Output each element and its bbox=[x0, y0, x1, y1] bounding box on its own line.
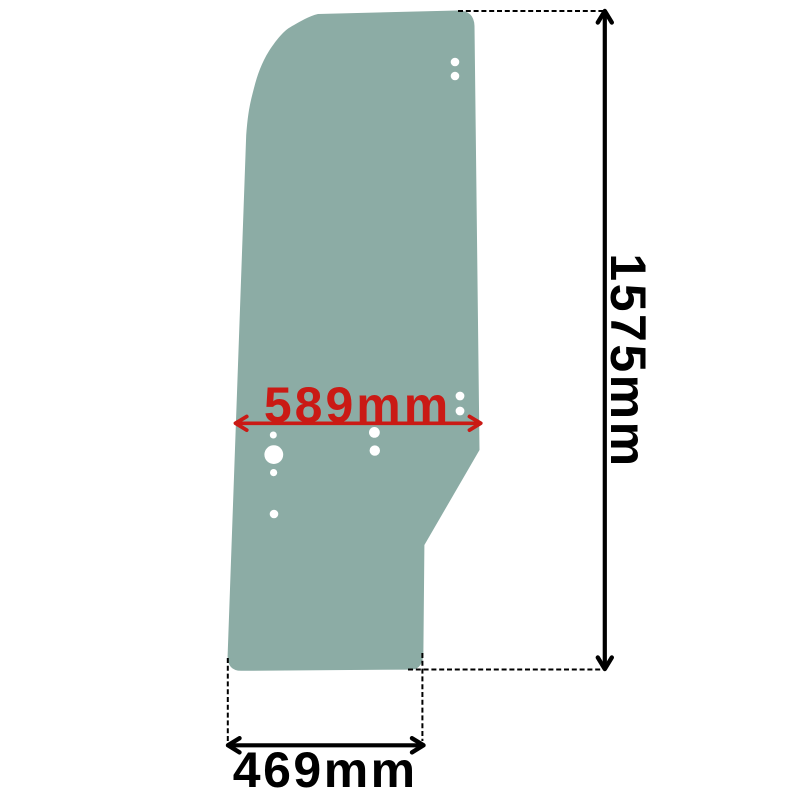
svg-text:469mm: 469mm bbox=[233, 742, 418, 798]
svg-text:1575mm: 1575mm bbox=[600, 253, 656, 468]
svg-text:589mm: 589mm bbox=[264, 377, 451, 433]
